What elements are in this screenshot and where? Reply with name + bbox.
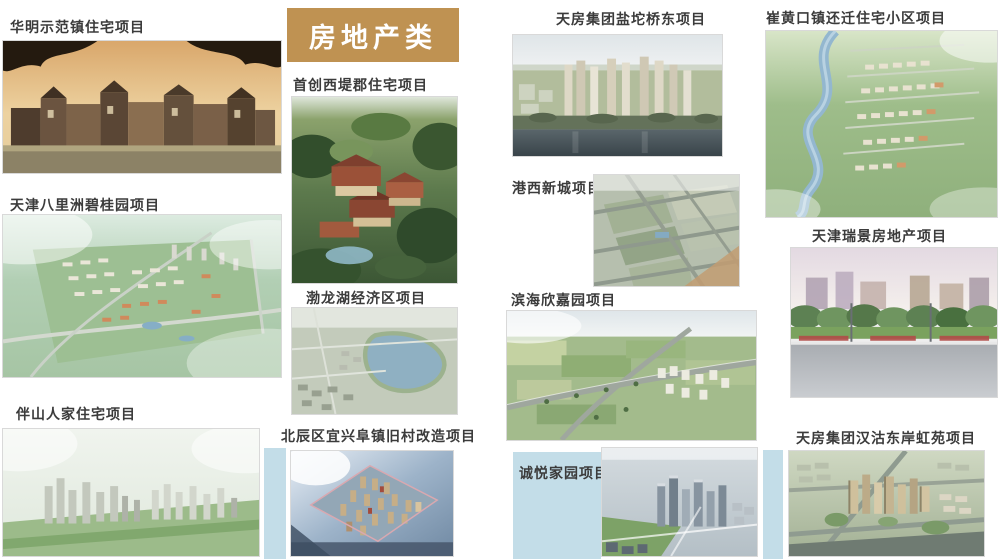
project-label-gangxi: 港西新城项目 (512, 178, 602, 198)
project-label-banshan: 伴山人家住宅项目 (16, 404, 136, 424)
project-image-banshan (2, 428, 260, 557)
project-label-chengyue: 诚悦家园项目 (519, 463, 609, 483)
project-image-beichen (290, 450, 454, 557)
project-label-cuihuangkou: 崔黄口镇还迁住宅小区项目 (766, 8, 946, 28)
project-label-ruijing: 天津瑞景房地产项目 (812, 226, 947, 246)
project-image-gangxi (593, 174, 740, 287)
project-image-ruijing (790, 247, 998, 398)
project-label-balizhou: 天津八里洲碧桂园项目 (10, 195, 160, 215)
project-image-cuihuangkou (765, 30, 998, 218)
project-label-beichen: 北辰区宜兴阜镇旧村改造项目 (281, 426, 476, 446)
chengyue-label-panel: 诚悦家园项目 (513, 452, 601, 559)
project-image-yantuo (512, 34, 723, 157)
project-image-hangu (788, 450, 985, 557)
project-image-balizhou (2, 214, 282, 378)
project-image-binhai (506, 310, 757, 441)
project-label-bolonghu: 渤龙湖经济区项目 (306, 288, 426, 308)
project-image-chengyue (601, 447, 758, 557)
decor-strip-left (264, 448, 286, 559)
project-image-bolonghu (291, 307, 458, 415)
project-image-xidijun (291, 96, 458, 284)
project-label-hangu: 天房集团汉沽东岸虹苑项目 (796, 428, 976, 448)
decor-strip-right (763, 450, 783, 559)
project-image-huaming (2, 40, 282, 174)
brochure-page: 房地产类 华明示范镇住宅项目 天津八里洲碧桂园项目 (0, 0, 1000, 559)
category-badge: 房地产类 (287, 8, 459, 62)
project-label-xidijun: 首创西堤郡住宅项目 (293, 75, 428, 95)
project-label-yantuo: 天房集团盐坨桥东项目 (556, 9, 706, 29)
project-label-binhai: 滨海欣嘉园项目 (511, 290, 616, 310)
project-label-huaming: 华明示范镇住宅项目 (10, 17, 145, 37)
